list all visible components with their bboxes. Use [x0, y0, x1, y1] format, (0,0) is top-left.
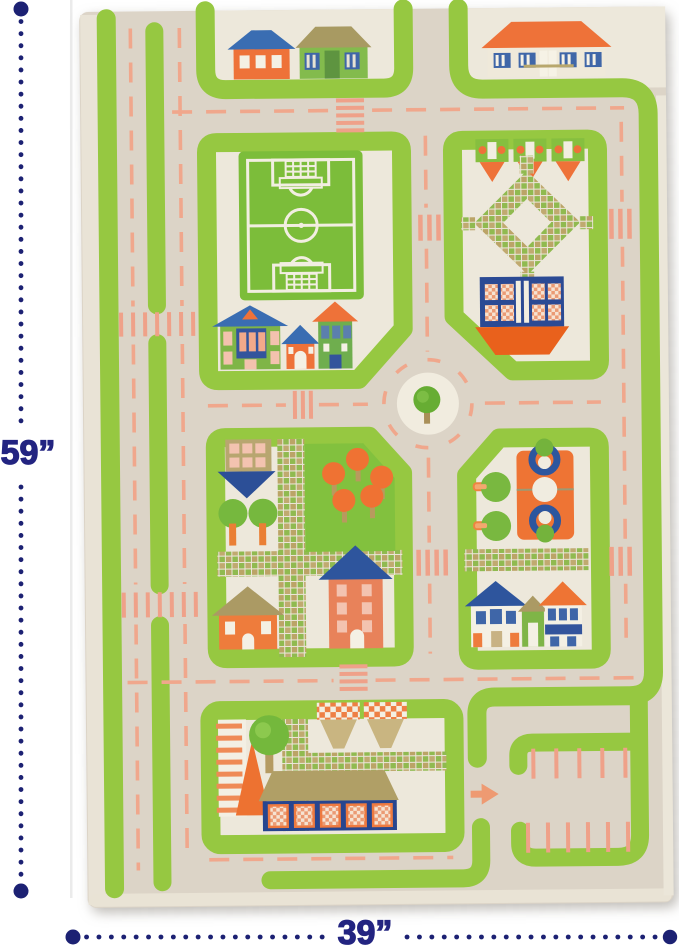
- svg-text:59”: 59”: [1, 434, 56, 472]
- svg-text:39”: 39”: [338, 914, 393, 951]
